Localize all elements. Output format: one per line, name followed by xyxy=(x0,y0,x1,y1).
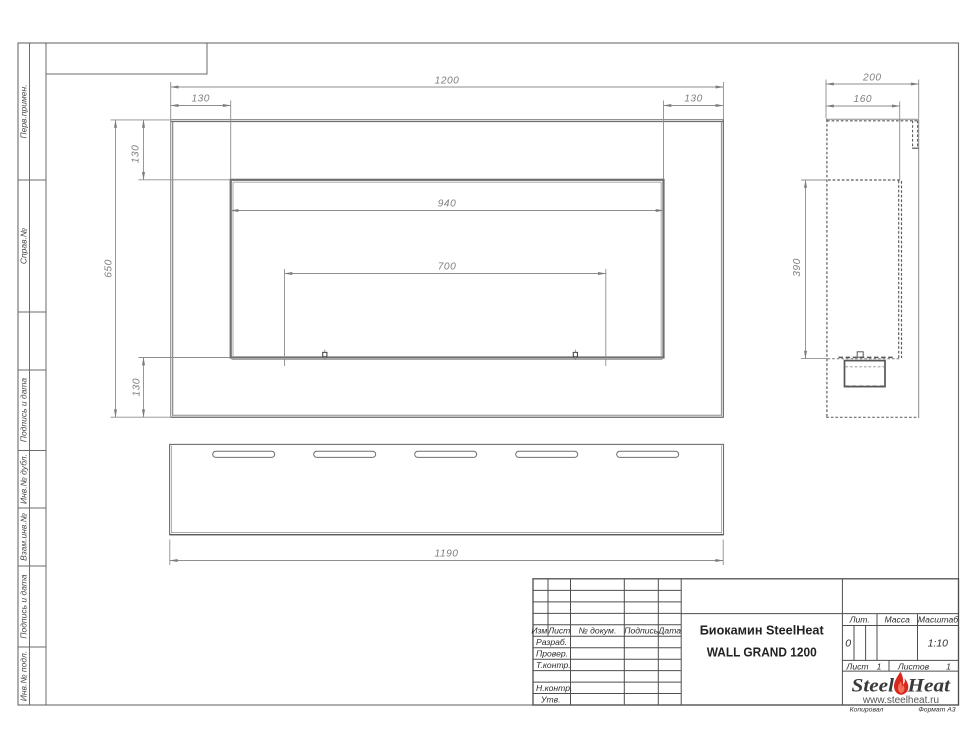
svg-text:160: 160 xyxy=(854,94,873,105)
svg-text:1190: 1190 xyxy=(435,549,459,560)
svg-text:Лит.: Лит. xyxy=(849,615,870,625)
svg-text:Масштаб: Масштаб xyxy=(918,615,959,625)
svg-text:0: 0 xyxy=(845,638,851,650)
svg-text:WALL GRAND 1200: WALL GRAND 1200 xyxy=(707,644,817,659)
svg-text:Листов: Листов xyxy=(897,661,930,671)
svg-text:Взам.инв.№: Взам.инв.№ xyxy=(19,513,29,561)
svg-text:130: 130 xyxy=(132,378,143,397)
svg-text:1: 1 xyxy=(877,661,882,671)
svg-text:700: 700 xyxy=(438,262,457,273)
svg-text:390: 390 xyxy=(792,258,803,277)
svg-text:Heat: Heat xyxy=(906,677,951,697)
svg-text:Биокамин SteelHeat: Биокамин SteelHeat xyxy=(700,623,825,638)
svg-text:Н.контр.: Н.контр. xyxy=(536,683,572,693)
svg-text:940: 940 xyxy=(438,199,457,210)
svg-text:1200: 1200 xyxy=(435,76,460,87)
svg-text:Подпись и дата: Подпись и дата xyxy=(19,378,29,443)
svg-text:Справ.№: Справ.№ xyxy=(19,228,29,264)
svg-text:200: 200 xyxy=(862,73,882,84)
svg-text:Steel: Steel xyxy=(852,677,895,697)
svg-text:Лист: Лист xyxy=(845,661,868,671)
svg-text:Лист: Лист xyxy=(547,626,570,636)
svg-text:№ докум.: № докум. xyxy=(578,626,616,636)
svg-text:Разраб.: Разраб. xyxy=(536,637,567,647)
svg-text:1:10: 1:10 xyxy=(928,638,949,650)
svg-text:650: 650 xyxy=(104,259,115,278)
svg-text:Формат А3: Формат А3 xyxy=(918,707,955,714)
svg-text:Инв.№ дубл.: Инв.№ дубл. xyxy=(19,454,29,504)
svg-text:Подпись: Подпись xyxy=(624,626,659,636)
svg-text:Инв.№ подл.: Инв.№ подл. xyxy=(19,651,29,701)
svg-text:www.steelheat.ru: www.steelheat.ru xyxy=(862,695,939,706)
svg-text:Дата: Дата xyxy=(657,626,681,636)
svg-text:Т.контр.: Т.контр. xyxy=(536,660,571,670)
svg-text:130: 130 xyxy=(131,145,142,164)
svg-text:Изм.: Изм. xyxy=(531,626,549,636)
svg-text:130: 130 xyxy=(191,94,210,105)
svg-text:Провер.: Провер. xyxy=(536,649,568,659)
svg-text:1: 1 xyxy=(946,661,951,671)
svg-text:Копировал: Копировал xyxy=(850,707,884,714)
svg-text:Масса: Масса xyxy=(884,615,910,625)
svg-text:130: 130 xyxy=(684,94,703,105)
svg-text:Утв.: Утв. xyxy=(540,694,561,704)
svg-text:Перв.примен.: Перв.примен. xyxy=(19,84,29,138)
svg-text:Подпись и дата: Подпись и дата xyxy=(19,574,29,639)
